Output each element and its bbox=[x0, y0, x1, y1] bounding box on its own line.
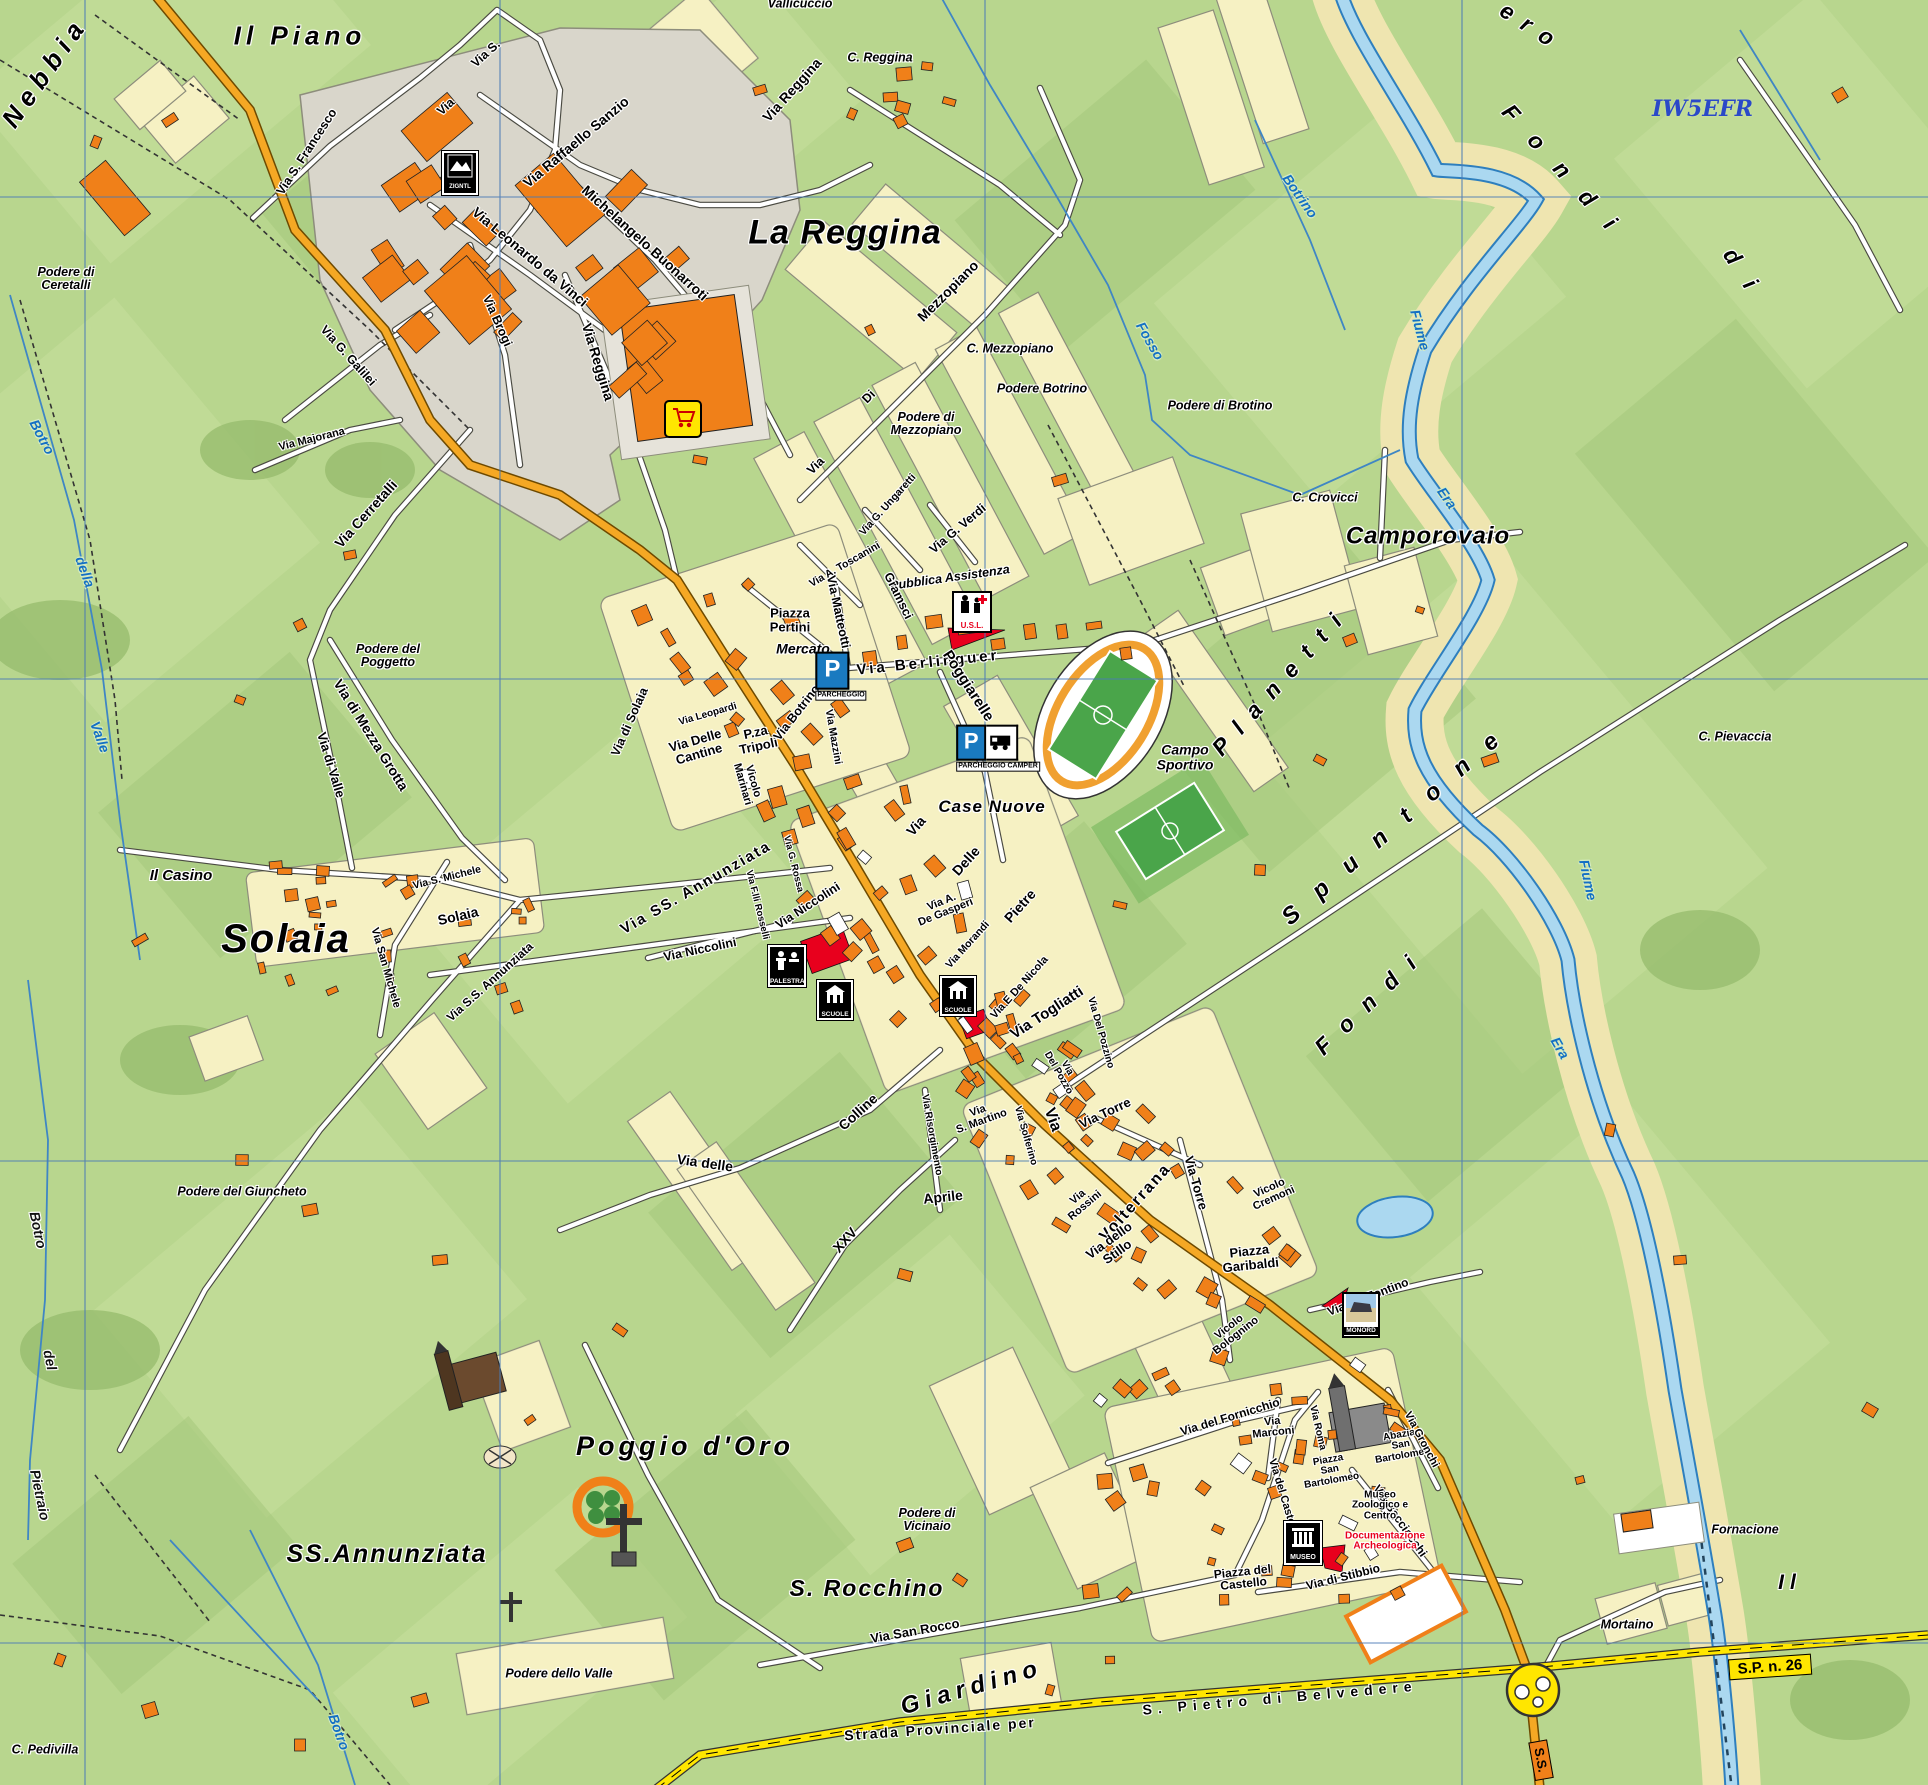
poi-caption: PARCHEGGIO bbox=[815, 691, 866, 701]
water-label: della bbox=[73, 555, 98, 590]
map-labels-layer: IW5EFR Il PianoNebbiaLa RegginaSolaiaCam… bbox=[0, 0, 1928, 1785]
street-label: Via Risorgimento bbox=[919, 1094, 943, 1177]
locality-label: C. Pievaccia bbox=[1699, 731, 1772, 744]
locality-label: Podere del Poggetto bbox=[356, 643, 420, 669]
locality-label: Podere di Vicinaio bbox=[899, 1507, 956, 1533]
water-label: Fiume bbox=[1577, 858, 1600, 901]
water-label: Fiume bbox=[1408, 308, 1433, 352]
market-icon bbox=[664, 400, 702, 438]
street-label: Vicolo Marinari bbox=[730, 759, 764, 806]
street-label: Via bbox=[904, 813, 929, 838]
parking-icon: PPARCHEGGIO bbox=[815, 652, 866, 701]
street-label: Via Mazzini bbox=[823, 709, 843, 766]
street-label: Pietre bbox=[1002, 887, 1039, 926]
street-label: Via Niccolini bbox=[773, 880, 842, 931]
street-label: Via San Michele bbox=[368, 927, 402, 1010]
street-label: Di bbox=[860, 388, 878, 406]
locality-label: Mortaino bbox=[1601, 1619, 1654, 1632]
place-label: ero bbox=[1495, 0, 1568, 58]
locality-label: C. Mezzopiano bbox=[967, 343, 1054, 356]
place-label: Il Casino bbox=[150, 868, 213, 884]
water-label: Era bbox=[1435, 485, 1460, 512]
water-label: Botro bbox=[27, 417, 57, 457]
place-label: Spuntone bbox=[1278, 713, 1523, 930]
street-label: Via Cerretalli bbox=[332, 477, 400, 550]
street-label: Via Majorana bbox=[278, 426, 346, 453]
street-label: Via Leopardi bbox=[678, 702, 738, 728]
water-label: Botrino bbox=[1280, 171, 1320, 220]
street-label: Piazza San Bartolomeo bbox=[1300, 1451, 1360, 1491]
street-label: XXV bbox=[830, 1225, 860, 1256]
street-label: Via di Mezza Grotta bbox=[331, 677, 411, 793]
street-label: Via di Stibbio bbox=[1305, 1562, 1382, 1592]
locality-label: Pubblica Assistenza bbox=[889, 563, 1010, 593]
street-label: Via S. Martino bbox=[951, 1097, 1009, 1137]
street-label: Via Solferino bbox=[1012, 1105, 1039, 1166]
street-label: Via Morandi bbox=[944, 919, 992, 970]
usl-icon: U.S.L. bbox=[952, 591, 992, 633]
street-label: Via Raffaello Sanzio bbox=[520, 94, 631, 190]
scuole-icon: SCUOLE bbox=[940, 976, 976, 1016]
camper-icon: PPARCHEGGIO CAMPER bbox=[956, 725, 1040, 772]
poi-caption: PARCHEGGIO CAMPER bbox=[956, 762, 1040, 772]
street-label: Via bbox=[435, 96, 457, 118]
street-label: Via Roma bbox=[1307, 1405, 1327, 1452]
street-label: Piazza del Castello bbox=[1213, 1563, 1273, 1594]
street-label: Via S. bbox=[469, 38, 503, 70]
place-label: Fondi bbox=[1497, 100, 1637, 252]
street-label: Museo Zoologico e Centro bbox=[1352, 1490, 1408, 1521]
street-label: Via Matteotti bbox=[824, 574, 852, 649]
street-label: Via Rossini bbox=[1059, 1180, 1104, 1223]
road-badge: S.S. bbox=[1528, 1739, 1553, 1780]
street-label: Via Torre bbox=[1182, 1155, 1210, 1212]
street-label: Via Niccolini bbox=[662, 936, 737, 964]
locality-label: C. Pedivilla bbox=[12, 1744, 79, 1757]
street-label: Via F.lli Rosselli bbox=[744, 869, 771, 940]
water-label-dark: Pietraio bbox=[28, 1468, 53, 1521]
place-label: Nebbia bbox=[0, 12, 93, 133]
industry-icon: ZIGNTL bbox=[442, 151, 478, 195]
locality-label: Podere del Giuncheto bbox=[177, 1186, 306, 1199]
street-label: Piazza Garibaldi bbox=[1221, 1242, 1280, 1275]
place-label: S. Rocchino bbox=[790, 1577, 945, 1601]
street-label: Via Berlinguer bbox=[856, 648, 1000, 679]
street-label: Via A. De Gasperi bbox=[913, 887, 975, 930]
water-label: Valle bbox=[88, 719, 113, 754]
place-label: Case Nuove bbox=[938, 798, 1045, 816]
street-label: Via Brogi bbox=[480, 293, 514, 348]
locality-label: Podere di Ceretalli bbox=[38, 266, 95, 292]
street-label: Via Delle Cantine bbox=[667, 727, 726, 768]
scuole-icon: SCUOLE bbox=[817, 980, 853, 1020]
street-label: Via Del Pozzo bbox=[1041, 1045, 1083, 1096]
street-label: Via Leonardo da Vinci bbox=[469, 205, 590, 310]
street-label: Via G. Verdi bbox=[927, 502, 988, 556]
street-label: Via Reggina bbox=[760, 55, 824, 124]
street-label: Via bbox=[1040, 1106, 1064, 1134]
place-label: Il bbox=[1778, 1572, 1802, 1594]
water-label-dark: Botro bbox=[27, 1210, 49, 1250]
place-label: Poggio d'Oro bbox=[576, 1432, 794, 1460]
street-label: Via S.S. Annunziata bbox=[444, 940, 535, 1024]
museo-icon: MUSEO bbox=[1284, 1521, 1322, 1565]
locality-label: C. Reggina bbox=[847, 52, 912, 65]
street-label: Mezzopiano bbox=[915, 258, 981, 324]
street-label: Via di Solaia bbox=[609, 686, 651, 758]
place-label: Solaia bbox=[221, 919, 351, 961]
street-label: Via dello Stillo bbox=[1084, 1219, 1143, 1272]
water-label: Fosso bbox=[1133, 320, 1166, 363]
place-label: Planetti bbox=[1208, 600, 1356, 761]
street-label: Vicolo Cremoni bbox=[1247, 1174, 1297, 1213]
place-label: Campo Sportivo bbox=[1157, 742, 1214, 771]
road-badge: S.P. n. 26 bbox=[1728, 1654, 1812, 1681]
street-label: Via Reggina bbox=[579, 322, 616, 403]
street-label-red: Documentazione Archeologica bbox=[1345, 1532, 1425, 1553]
callsign-label: IW5EFR bbox=[1652, 96, 1753, 122]
water-label: Era bbox=[1548, 1035, 1572, 1062]
street-label: Piazza Pertini bbox=[770, 606, 810, 633]
locality-label: Podere Botrino bbox=[997, 383, 1087, 396]
street-label: Colline bbox=[836, 1091, 880, 1133]
street-label: Via S. Michele bbox=[412, 864, 482, 891]
water-label: Botro bbox=[326, 1712, 352, 1752]
street-label: Strada Provinciale per bbox=[844, 1715, 1036, 1743]
street-label: Via G. Rossa bbox=[781, 835, 805, 894]
street-label: Via Marconi bbox=[1251, 1414, 1295, 1441]
place-label: d i bbox=[1718, 244, 1766, 300]
street-label: P.za Tripoli bbox=[735, 722, 779, 757]
locality-label: Podere di Brotino bbox=[1168, 400, 1273, 413]
street-label: Via Torre bbox=[1077, 1095, 1133, 1131]
place-label: SS.Annunziata bbox=[286, 1541, 487, 1567]
locality-label: Fornacione bbox=[1711, 1524, 1778, 1537]
locality-label: Podere di Mezzopiano bbox=[891, 411, 962, 437]
town-street-map: IW5EFR Il PianoNebbiaLa RegginaSolaiaCam… bbox=[0, 0, 1928, 1785]
street-label: Via G. Ungaretti bbox=[858, 472, 919, 538]
street-label: Via A. Toscanini bbox=[808, 540, 883, 589]
street-label: Via San Rocco bbox=[869, 1617, 960, 1646]
street-label: Via bbox=[805, 455, 827, 477]
place-label: La Reggina bbox=[748, 215, 941, 250]
place-label: Il Piano bbox=[234, 22, 366, 49]
locality-label: C. Crovicci bbox=[1292, 492, 1357, 505]
street-label: Delle bbox=[949, 844, 982, 879]
street-label: Aprile bbox=[923, 1188, 964, 1207]
street-label: Via delle bbox=[676, 1152, 734, 1174]
place-label: Fondi bbox=[1311, 940, 1434, 1060]
water-label-dark: del bbox=[41, 1349, 59, 1372]
locality-label: Vallicuccio bbox=[768, 0, 833, 11]
street-label: Via di Valle bbox=[315, 731, 348, 800]
palestra-icon: PALESTRA bbox=[768, 945, 806, 987]
street-label: Via G. Galilei bbox=[318, 323, 379, 388]
street-label: Via Del Pozzino bbox=[1085, 996, 1115, 1070]
place-label: Giardino bbox=[898, 1656, 1046, 1720]
monord-icon: MONORD bbox=[1342, 1292, 1380, 1338]
locality-label: Podere dello Valle bbox=[505, 1668, 612, 1681]
place-label: Camporovaio bbox=[1346, 525, 1510, 550]
street-label: S. Pietro di Belvedere bbox=[1142, 1679, 1418, 1718]
street-label: Solaia bbox=[436, 904, 479, 927]
street-label: Via S. Francesco bbox=[274, 107, 339, 198]
street-label: Michelangelo Buonarroti bbox=[579, 183, 711, 304]
street-label: Vicolo Bolognino bbox=[1205, 1306, 1262, 1358]
